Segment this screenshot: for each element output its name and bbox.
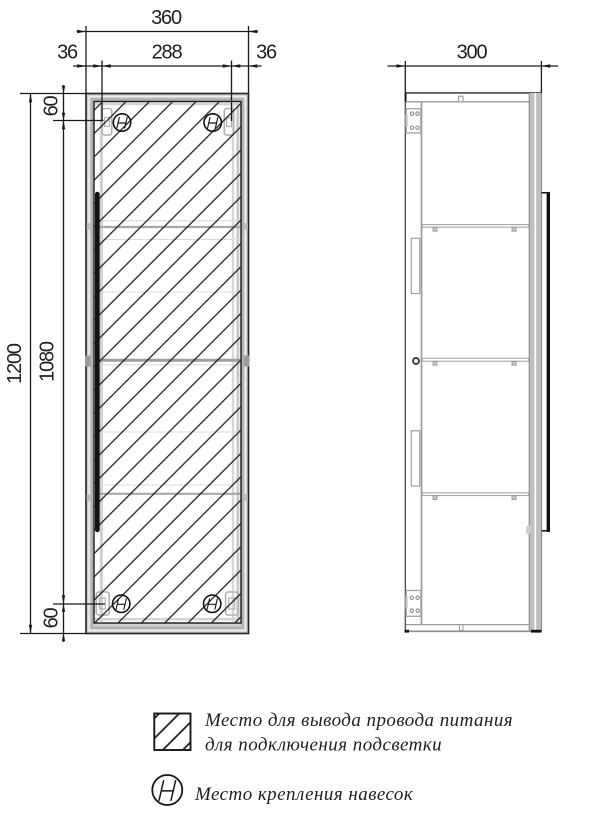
- svg-text:300: 300: [457, 42, 488, 64]
- svg-text:1080: 1080: [37, 341, 59, 382]
- svg-text:36: 36: [57, 42, 78, 64]
- svg-text:60: 60: [41, 608, 63, 629]
- svg-text:Место для вывода провода питан: Место для вывода провода питания: [204, 710, 513, 731]
- svg-text:Место крепления навесок: Место крепления навесок: [194, 784, 414, 805]
- svg-text:288: 288: [152, 42, 183, 64]
- svg-text:36: 36: [256, 42, 277, 64]
- svg-text:60: 60: [41, 96, 63, 117]
- svg-text:для подключения подсветки: для подключения подсветки: [205, 735, 442, 756]
- svg-text:360: 360: [151, 7, 182, 29]
- svg-text:1200: 1200: [4, 343, 26, 384]
